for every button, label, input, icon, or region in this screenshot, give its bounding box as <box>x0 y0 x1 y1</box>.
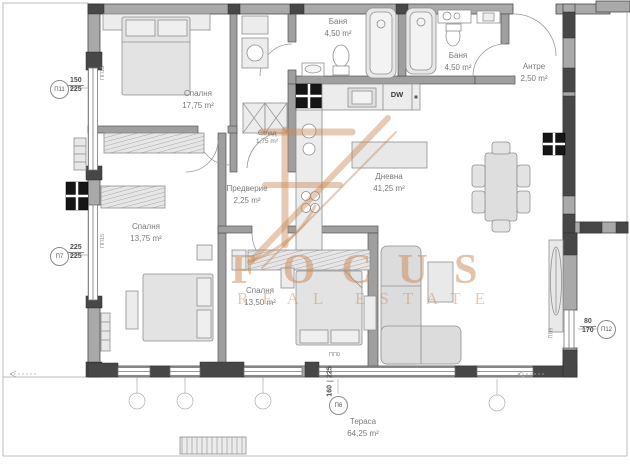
room-label-living: Дневна 41,25 m² <box>344 171 434 194</box>
room-name: Тераса <box>318 416 408 428</box>
marker-pp15-upper: ПП15 <box>100 66 106 80</box>
room-label-storage: Склад 1,75 m² <box>222 130 312 147</box>
marker-p12: П12 <box>597 320 616 339</box>
entry-door-arc <box>514 14 556 56</box>
room-area: 2,50 m² <box>489 73 579 85</box>
marker-p6-dims: 160 225 <box>327 366 334 396</box>
marker-pp0: ПП0 <box>329 352 340 358</box>
room-label-bedroom1: Спалня 17,75 m² <box>153 88 243 111</box>
room-label-hallway: Предверие 2,25 m² <box>202 183 292 206</box>
ac-unit <box>180 437 246 454</box>
room-area: 17,75 m² <box>153 100 243 112</box>
room-label-terrace: Тераса 64,25 m² <box>318 416 408 439</box>
bed-bedroom1 <box>103 14 210 95</box>
room-name: Спалня <box>153 88 243 100</box>
coffee-table <box>428 262 453 302</box>
marker-p6: П6 <box>329 396 348 415</box>
wardrobe-2 <box>101 186 165 208</box>
toilet-1 <box>333 45 349 67</box>
room-area: 13,50 m² <box>215 297 305 309</box>
dim-top: 225 <box>68 244 84 253</box>
wardrobe-3-side <box>232 250 246 270</box>
room-name: Склад <box>222 130 312 138</box>
dim-bottom: 170 <box>580 327 596 335</box>
marker-p7: П7 <box>50 247 69 266</box>
marker-pp9: ПП9 <box>548 328 554 339</box>
dim-bottom: 225 <box>68 253 84 261</box>
room-label-bedroom3: Спалня 13,50 m² <box>215 285 305 308</box>
grid-bubble <box>177 393 193 409</box>
dim-top: 160 <box>327 381 334 397</box>
marker-p11: П11 <box>50 80 69 99</box>
dining-set <box>472 142 530 232</box>
marker-p11-dims: 150 225 <box>68 77 84 95</box>
dim-top: 80 <box>580 318 596 327</box>
room-area: 64,25 m² <box>318 428 408 440</box>
room-area: 41,25 m² <box>344 183 434 195</box>
dim-bottom: 225 <box>68 86 84 94</box>
shaft-column-left <box>66 182 88 210</box>
plant <box>551 247 562 315</box>
marker-pp15-lower: ПП15 <box>100 234 106 248</box>
room-area: 1,75 m² <box>222 138 312 146</box>
room-area: 4,50 m² <box>293 28 383 40</box>
room-name: Спалня <box>101 221 191 233</box>
wardrobe-1 <box>104 133 204 153</box>
room-area: 13,75 m² <box>101 233 191 245</box>
room-area: 2,25 m² <box>202 195 292 207</box>
marker-p7-dims: 225 225 <box>68 244 84 262</box>
shaft-column-kitchen <box>296 84 322 108</box>
dim-top: 150 <box>68 77 84 86</box>
floor-plan: Спалня 17,75 m² Баня 4,50 m² Баня 4,50 m… <box>0 0 630 467</box>
radiator-1 <box>74 138 86 170</box>
grid-bubble <box>255 393 271 409</box>
room-name: Баня <box>413 50 503 62</box>
dishwasher-label: DW <box>384 90 410 99</box>
radiator-2 <box>101 313 110 351</box>
bed-bedroom2 <box>126 245 213 341</box>
shaft-column-dining <box>543 133 565 155</box>
room-name: Антре <box>489 61 579 73</box>
room-label-bedroom2: Спалня 13,75 m² <box>101 221 191 244</box>
room-name: Предверие <box>202 183 292 195</box>
grid-bubble <box>129 393 145 409</box>
room-name: Баня <box>293 16 383 28</box>
room-name: Дневна <box>344 171 434 183</box>
washing-machine <box>242 16 268 68</box>
grid-bubble <box>489 395 505 411</box>
marker-p12-dims: 80 170 <box>580 318 596 336</box>
room-name: Спалня <box>215 285 305 297</box>
dim-bottom: 225 <box>327 366 334 378</box>
room-label-bath1: Баня 4,50 m² <box>293 16 383 39</box>
room-label-antre: Антре 2,50 m² <box>489 61 579 84</box>
